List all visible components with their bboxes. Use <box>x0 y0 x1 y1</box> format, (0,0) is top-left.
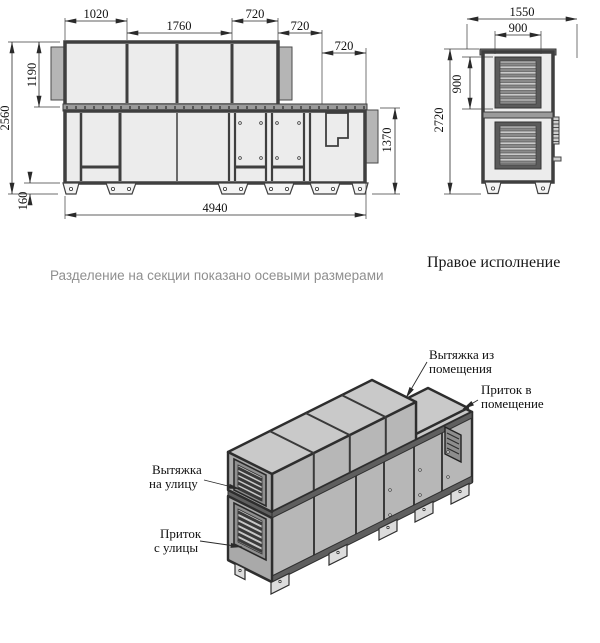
dim-900-width-label: 900 <box>509 21 528 35</box>
front-bottom-right-flange <box>365 110 378 163</box>
dim-1370-label: 1370 <box>380 128 394 153</box>
label-exhaust-from-room-line1: Вытяжка из <box>429 347 494 362</box>
label-exhaust-to-outside-line2: на улицу <box>149 476 198 491</box>
dim-2560-label: 2560 <box>0 106 12 131</box>
drawing-page: 1020 1760 720 720 720 2560 1190 160 4940… <box>0 0 600 643</box>
iso-view: Вытяжка из помещения Приток в помещение … <box>149 347 544 594</box>
label-exhaust-from-room-line2: помещения <box>429 361 492 376</box>
side-lower-louver <box>495 122 541 169</box>
dim-1760-label: 1760 <box>167 19 192 33</box>
dim-1550-label: 1550 <box>510 5 535 19</box>
label-supply-to-room-line2: помещение <box>481 396 544 411</box>
dim-720-low-label: 720 <box>335 39 354 53</box>
dim-4940-label: 4940 <box>203 201 228 215</box>
lower-louver-slats <box>500 128 536 164</box>
label-supply-from-outside-line2: с улицы <box>154 540 198 555</box>
label-supply-to-room-line1: Приток в <box>481 382 532 397</box>
dim-720-mid-label: 720 <box>291 19 310 33</box>
front-left-flange <box>51 47 65 100</box>
label-exhaust-to-outside-line1: Вытяжка <box>152 462 202 477</box>
bottom-tier-body <box>65 111 365 183</box>
dim-720-top-label: 720 <box>246 7 265 21</box>
sectioning-note: Разделение на секции показано осевыми ра… <box>50 268 384 283</box>
side-view-caption: Правое исполнение <box>427 254 560 271</box>
leader-supply-to-room <box>463 400 478 409</box>
dim-1020-label: 1020 <box>84 7 109 21</box>
side-tier-rail <box>483 112 553 118</box>
dim-160-label: 160 <box>16 192 30 211</box>
drain-stub <box>553 157 561 161</box>
technical-drawing: 1020 1760 720 720 720 2560 1190 160 4940… <box>0 0 600 643</box>
dim-1190-label: 1190 <box>25 63 39 88</box>
label-supply-from-outside-line1: Приток <box>160 526 202 541</box>
front-view-bottom-tier <box>63 110 378 194</box>
front-view-top-tier <box>51 42 292 105</box>
side-view: 1550 900 2720 900 Правое исполнение <box>427 5 577 271</box>
dim-900-height-label: 900 <box>450 75 464 94</box>
front-view: 1020 1760 720 720 720 2560 1190 160 4940… <box>0 7 400 219</box>
side-upper-louver <box>495 57 541 108</box>
front-top-right-flange <box>278 47 292 100</box>
dim-2720-label: 2720 <box>432 108 446 133</box>
fitting-rungs <box>553 121 559 142</box>
top-tier-body <box>65 42 278 105</box>
